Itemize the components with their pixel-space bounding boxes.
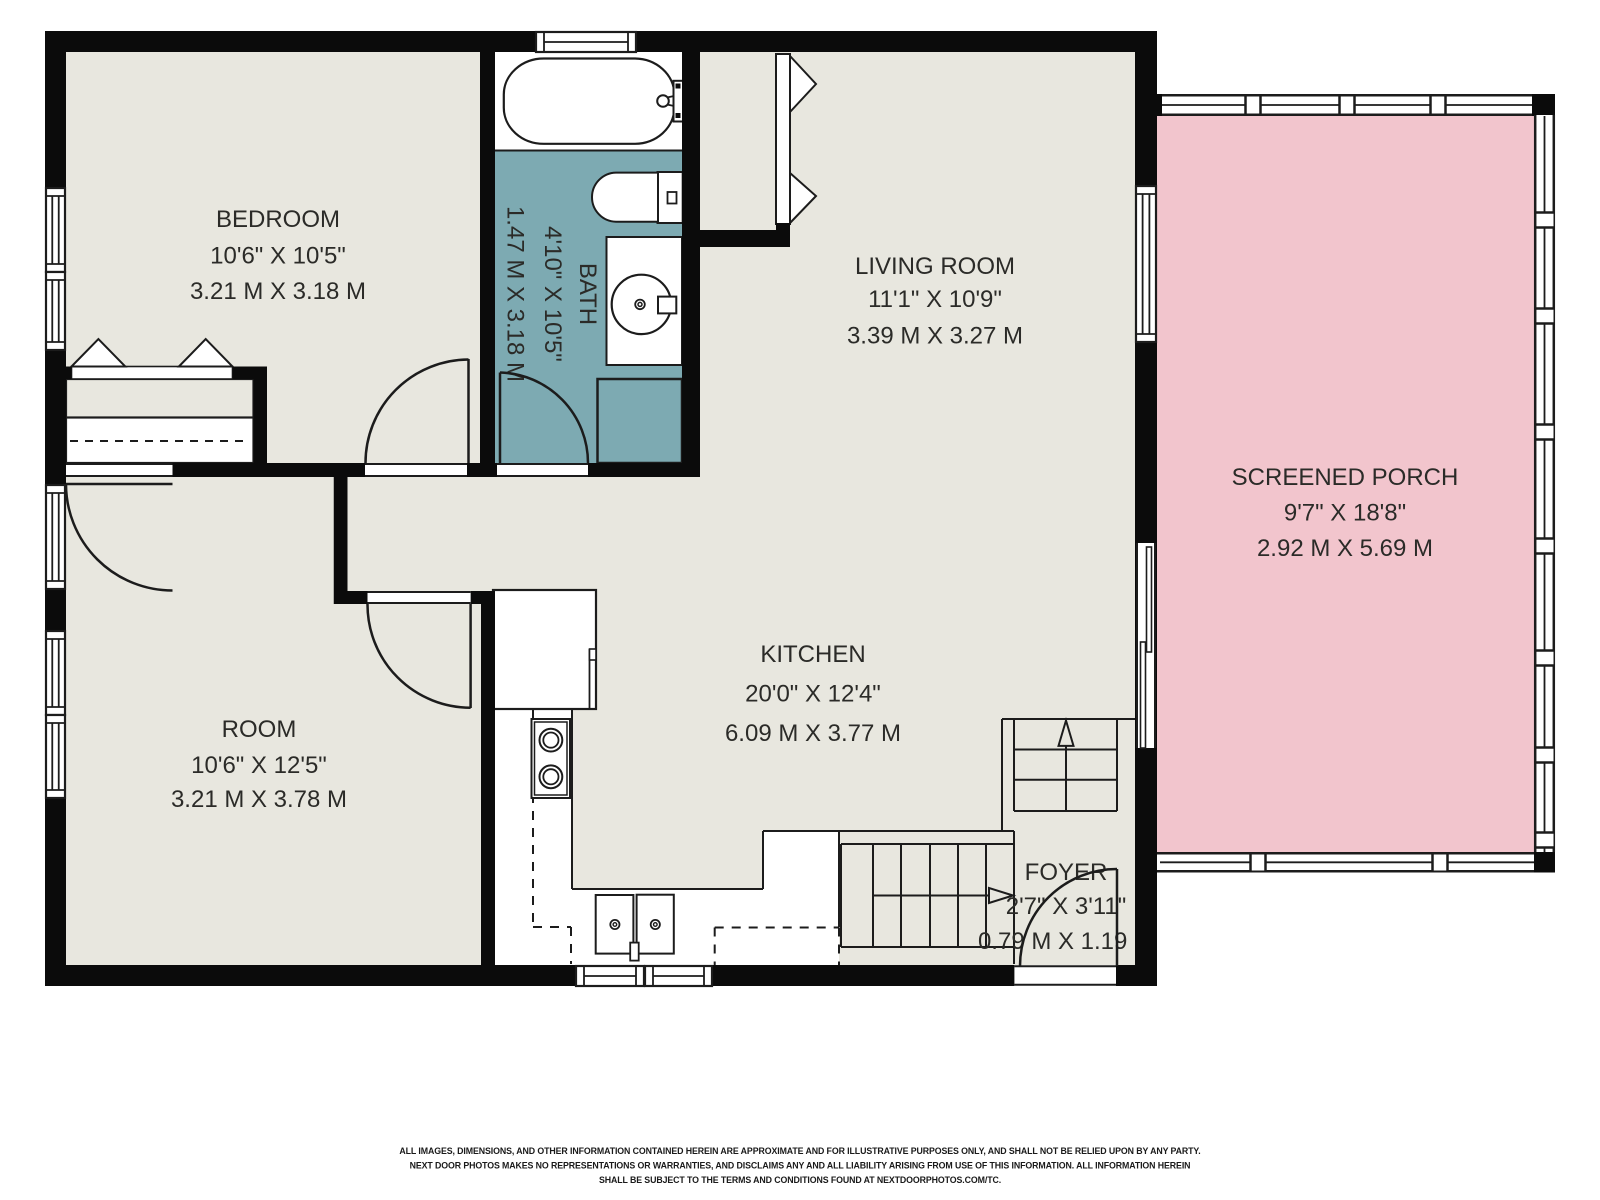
svg-text:SCREENED PORCH: SCREENED PORCH bbox=[1232, 464, 1459, 491]
svg-text:BATH: BATH bbox=[574, 263, 601, 325]
svg-text:0.79 M X 1.19 M: 0.79 M X 1.19 M bbox=[978, 928, 1154, 955]
svg-text:LIVING ROOM: LIVING ROOM bbox=[855, 253, 1015, 280]
svg-text:10'6" X 12'5": 10'6" X 12'5" bbox=[191, 752, 327, 779]
svg-text:ALL IMAGES, DIMENSIONS, AND OT: ALL IMAGES, DIMENSIONS, AND OTHER INFORM… bbox=[399, 1146, 1200, 1156]
svg-text:KITCHEN: KITCHEN bbox=[760, 641, 865, 668]
svg-text:9'7" X 18'8": 9'7" X 18'8" bbox=[1284, 500, 1406, 527]
svg-text:2.92 M X 5.69 M: 2.92 M X 5.69 M bbox=[1257, 535, 1433, 562]
svg-text:20'0" X 12'4": 20'0" X 12'4" bbox=[745, 681, 881, 708]
svg-text:3.39 M X 3.27 M: 3.39 M X 3.27 M bbox=[847, 323, 1023, 350]
svg-text:1.47 M X 3.18 M: 1.47 M X 3.18 M bbox=[502, 206, 529, 382]
svg-text:SHALL BE SUBJECT TO THE TERMS: SHALL BE SUBJECT TO THE TERMS AND CONDIT… bbox=[599, 1175, 1001, 1185]
svg-text:4'10" X 10'5": 4'10" X 10'5" bbox=[539, 226, 566, 362]
svg-text:2'7" X 3'11": 2'7" X 3'11" bbox=[1006, 893, 1127, 920]
svg-text:BEDROOM: BEDROOM bbox=[216, 206, 340, 233]
svg-text:11'1" X 10'9": 11'1" X 10'9" bbox=[868, 286, 1002, 313]
svg-text:6.09 M X 3.77 M: 6.09 M X 3.77 M bbox=[725, 720, 901, 747]
svg-text:NEXT DOOR PHOTOS MAKES NO REPR: NEXT DOOR PHOTOS MAKES NO REPRESENTATION… bbox=[410, 1161, 1191, 1171]
svg-text:ROOM: ROOM bbox=[222, 716, 297, 743]
svg-text:3.21 M X 3.18 M: 3.21 M X 3.18 M bbox=[190, 278, 366, 305]
svg-text:3.21 M X 3.78 M: 3.21 M X 3.78 M bbox=[171, 786, 347, 813]
svg-text:10'6" X 10'5": 10'6" X 10'5" bbox=[210, 243, 346, 270]
